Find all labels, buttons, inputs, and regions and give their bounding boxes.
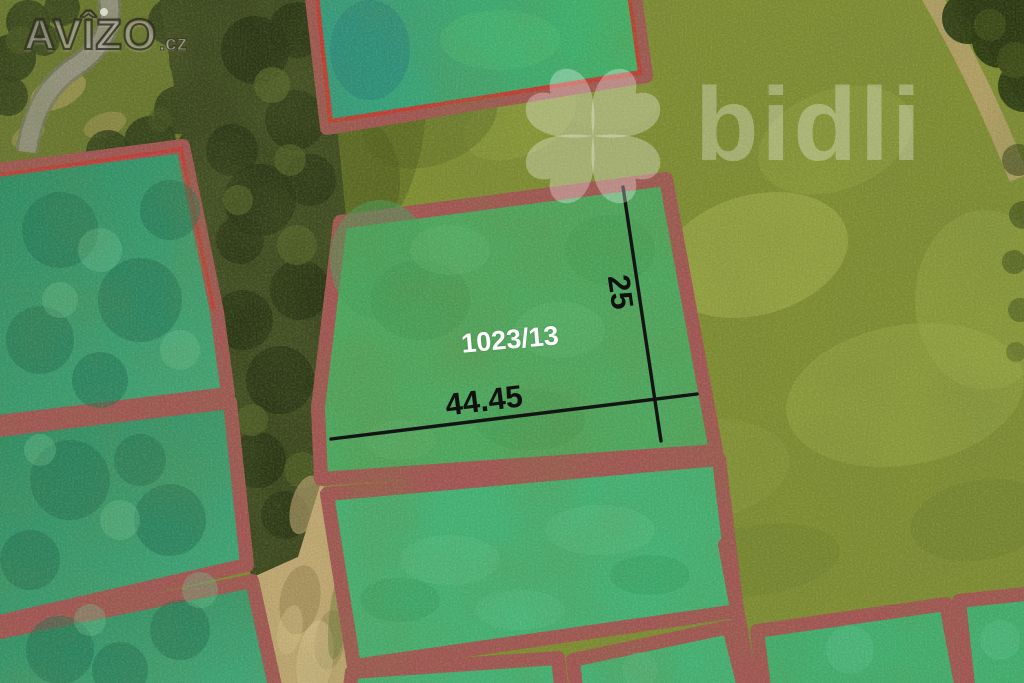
dimension-depth-label: 25 [600, 272, 640, 311]
aerial-parcel-photo: 1023/13 44.45 25 AVÎZO .cz bid [0, 0, 1024, 683]
